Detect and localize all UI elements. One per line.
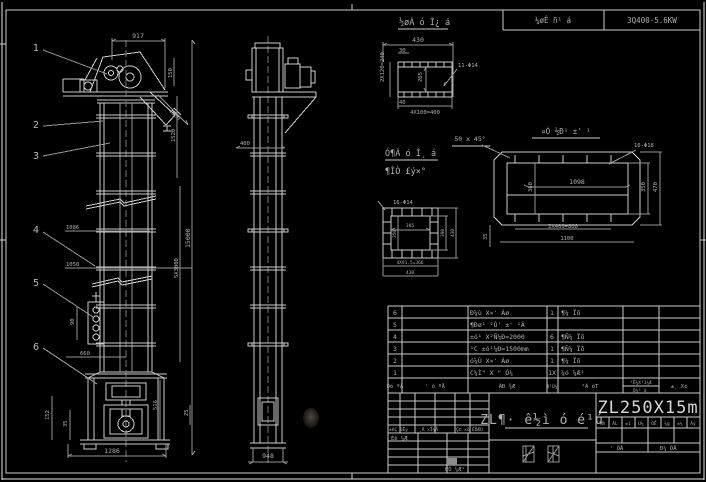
col-header-qty: ¶¹Ù¼: [547, 383, 558, 390]
header-right-label: 3Q400-5.6KW: [627, 16, 677, 25]
callout-1: 1: [33, 43, 39, 54]
dim-350: 350: [641, 182, 647, 192]
holes-11-d14: 11-Φ14: [458, 63, 479, 69]
stage-cell: ¶Ñ: [599, 420, 605, 427]
dim-2x400: 2X400=800: [548, 224, 578, 230]
dim-15000: 15000: [184, 228, 192, 248]
callout-3: 3: [33, 151, 39, 162]
detail-inlet-title: ¤Ó ½Ð¹ ±' ¹: [541, 127, 591, 136]
row-qty: 1: [550, 357, 554, 365]
stage-cell: ÁL: [612, 420, 618, 427]
dim-305: 305: [406, 223, 414, 229]
note-line2: ¶ÌÒ £ý×°: [385, 165, 426, 177]
row-qty: 1: [550, 345, 554, 353]
stage-cell: ¼g: [664, 421, 670, 427]
front-view: 1 2 3 4 5 6 917 150 1500 1520 15000 5X30…: [33, 32, 195, 462]
rev-header-file: ¸Ä ×Î¼Å: [419, 426, 438, 433]
dim-265: 265: [418, 72, 424, 82]
row-name: C¼Ì" X " Ó¾: [470, 368, 513, 377]
notes: 50 x 45° Ó¶Á ó Ì¸ á ¶ÌÒ £ý×°: [385, 135, 490, 177]
header-left-label: ¼øÊ ñ¹ á: [535, 16, 571, 25]
dim-150: 150: [168, 68, 174, 78]
dim-30: 30: [399, 48, 406, 54]
callout-5: 5: [33, 278, 39, 289]
dim-660: 660: [80, 351, 90, 357]
dim-4x100: 4X100=400: [410, 110, 440, 116]
dim-1100: 1100: [560, 236, 573, 242]
cad-drawing-sheet: ¼øÊ ñ¹ á 3Q400-5.6KW: [0, 0, 706, 482]
drawing-canvas: ¼øÊ ñ¹ á 3Q400-5.6KW: [0, 0, 706, 482]
row-no: 4: [393, 333, 397, 341]
stage-cell: Àý: [690, 420, 696, 427]
row-no: 6: [393, 309, 397, 317]
row-qty: 1X: [548, 369, 556, 377]
row-name: ó¼Ù X×' Áø: [470, 356, 509, 365]
dim-1500: 1500: [168, 108, 181, 122]
title-block: ±êÇ ÐÊý ¸Ä ×Î¼Å Ç© ×ö ÈÕÆÚ Éè ¼Æ ÉÓ ¼Æ¹ …: [388, 393, 700, 473]
dim-1086: 1086: [66, 225, 79, 231]
dim-430: 430: [412, 36, 424, 44]
dim-152: 152: [45, 410, 51, 420]
check-label: ÉÓ ¼Æ¹: [445, 465, 465, 473]
chamfer-note: 50 x 45°: [454, 135, 485, 143]
row-name: ±ó¹ X²Ñ¼Ð=2000: [470, 332, 525, 341]
stage-cell: ±¼: [677, 421, 683, 427]
row-material: ¶Ñ¼ Ïõ: [561, 344, 585, 353]
row-qty: 1: [550, 309, 554, 317]
row-material: ¶¼ Ïõ: [561, 356, 581, 365]
row-name: Ð¼ù X×' Áø: [470, 308, 509, 317]
dim-430-bottom: 430: [406, 270, 414, 276]
dim-390: 390: [440, 229, 446, 237]
header-bar: ¼øÊ ñ¹ á 3Q400-5.6KW: [503, 10, 700, 30]
row-no: 5: [393, 321, 397, 329]
dim-948: 948: [262, 452, 274, 460]
dim-40: 40: [399, 100, 406, 106]
detail-flange-title: ½øÁ ó Ì¿ á: [399, 16, 450, 28]
row-qty: 6: [550, 333, 554, 341]
smudge-artifact: [303, 408, 319, 428]
dim-400: 400: [240, 141, 250, 147]
row-material: ¼ó ¼Æ¹: [561, 369, 584, 377]
col-header-no: Ðó ºÅ: [387, 383, 404, 390]
side-view: 400 948: [236, 36, 316, 465]
dim-350b: 350: [392, 230, 398, 238]
sheet-count-label: ' ÕÅ: [610, 445, 624, 452]
dim-1286: 1286: [104, 447, 120, 455]
dim-1050: 1050: [66, 262, 79, 268]
callout-4: 4: [33, 225, 39, 236]
row-no: 1: [393, 369, 397, 377]
row-name: ¹C ±ó¹¼Ð=1500mm: [470, 345, 529, 353]
callout-6: 6: [33, 342, 39, 353]
dim-470: 470: [653, 182, 659, 192]
sheet-number-label: Ð¼ ÕÅ: [660, 445, 677, 452]
dim-430r: 430: [450, 229, 456, 237]
detail-plate: 16-Φ14 305 350 390 430 4X91.5=366 430: [378, 200, 458, 276]
dim-2x120: 2X120=240: [380, 52, 386, 82]
dim-1520: 1520: [171, 129, 177, 142]
col-header-remark: ±¸ X¢: [671, 384, 688, 390]
row-material: ¶Ñ¼ Ïõ: [561, 332, 585, 341]
dim-917: 917: [132, 32, 144, 40]
col-header-weight-unit: ¹Ê¼X¹1¼Æ: [630, 378, 652, 386]
stage-cell: Ù¼: [638, 420, 644, 427]
assembly-label-glyphs: [523, 446, 559, 462]
note-line1: Ó¶Á ó Ì¸ á: [385, 147, 436, 159]
col-header-material: ²Á óT: [582, 383, 599, 390]
callout-2: 2: [33, 120, 39, 131]
row-name: ¶Ðø¹ ²Ó' ±' ¹Á: [470, 320, 525, 329]
holes-10-d18: 10-Φ18: [634, 143, 654, 149]
holes-16-d14: 16-Φ14: [393, 200, 414, 206]
col-header-code: ' ó ºÅ: [425, 383, 446, 390]
dim-516: 516: [153, 400, 159, 410]
dim-90: 90: [70, 318, 76, 325]
stage-cell: ÓÊ: [651, 419, 657, 427]
stage-cell: ±1: [625, 421, 631, 427]
dim-360: 360: [528, 182, 534, 192]
row-no: 3: [393, 345, 397, 353]
dim-35: 35: [63, 420, 69, 427]
rev-header-mark: ±êÇ ÐÊý: [389, 425, 408, 433]
dim-1098: 1098: [569, 178, 585, 186]
dim-35b: 35: [483, 233, 489, 240]
highlight-cell: [447, 458, 457, 465]
detail-flange-strip: ½øÁ ó Ì¿ á 430 30 2X120=240 265 11-Φ14 4…: [380, 16, 479, 116]
row-no: 2: [393, 357, 397, 365]
col-header-name: ÃÐ ¾Æ: [499, 383, 516, 390]
parts-table: 6 Ð¼ù X×' Áø 1 ¶¼ Ïõ 5 ¶Ðø¹ ²Ó' ±' ¹Á 4 …: [387, 306, 700, 394]
design-label: Éè ¼Æ: [391, 434, 408, 442]
dim-4x91: 4X91.5=366: [396, 260, 423, 266]
rev-header-sign: Ç© ×ö: [456, 427, 470, 433]
detail-inlet-flange: ¤Ó ½Ð¹ ±' ¹ 10-Φ18 1098 360 350 470 2X40…: [482, 127, 662, 247]
dim-25: 25: [184, 409, 190, 416]
row-material: ¶¼ Ïõ: [561, 308, 581, 317]
model-number: ZL250X15m: [597, 398, 698, 418]
product-name: ZL¶· ê½ì ó é¹ú: [480, 413, 604, 428]
